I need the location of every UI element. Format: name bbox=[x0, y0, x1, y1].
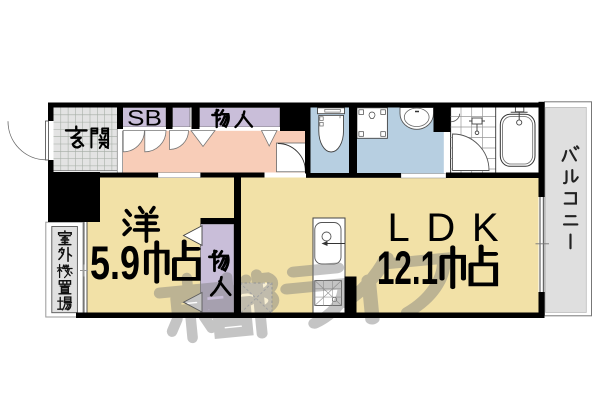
svg-text:5.9: 5.9 bbox=[90, 236, 140, 289]
svg-text:SB: SB bbox=[127, 105, 162, 130]
svg-text:12.1: 12.1 bbox=[377, 241, 438, 294]
